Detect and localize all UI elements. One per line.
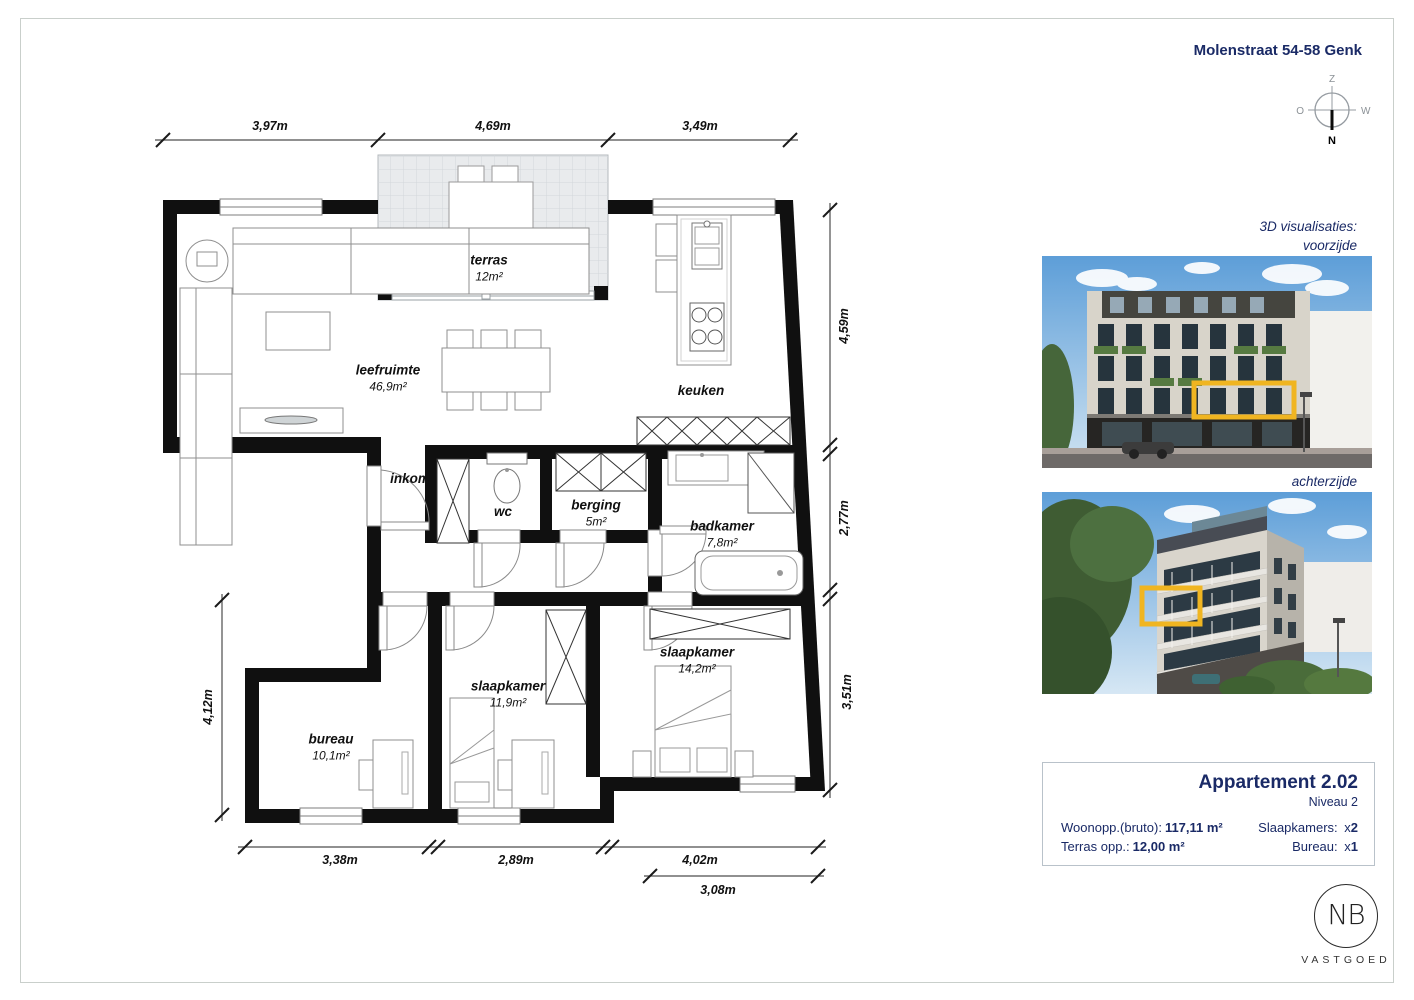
wardrobe-bedroom1 [546,610,586,704]
company-logo: NB VASTGOED [1296,880,1396,966]
window-bedroom1 [458,808,520,824]
area-stats: Woonopp.(bruto):117,11 m² Terras opp.:12… [1061,819,1223,857]
compass-south-label: Z [1329,74,1335,85]
dim-right-1: 4,59m [837,308,851,343]
dim-top-1: 3,97m [252,119,287,133]
room-label-inkom: inkom [390,470,430,488]
front-view-render [1042,256,1372,468]
dim-bottom-4: 3,08m [700,883,735,897]
back-view-render [1042,492,1372,694]
room-label-terras: terras 12m² [470,251,508,284]
living-area-field: Woonopp.(bruto):117,11 m² [1061,819,1223,838]
hall-closet-crossed [437,459,469,543]
room-label-slaapkamer-1: slaapkamer 11,9m² [471,677,545,710]
window-kitchen [653,199,775,215]
berging-door [556,530,606,587]
car [1192,674,1220,684]
white-side-building [1310,311,1372,451]
room-label-slaapkamer-2: slaapkamer 14,2m² [660,643,734,676]
main-building-front [1087,291,1310,448]
dim-right-3: 3,51m [840,674,854,709]
room-label-bureau: bureau 10,1m² [308,730,353,763]
front-view-label: voorzijde [1042,237,1357,256]
dim-top-2: 4,69m [475,119,510,133]
apartment-stats: Woonopp.(bruto):117,11 m² Terras opp.:12… [1061,819,1358,857]
room-label-badkamer: badkamer 7,8m² [690,517,754,550]
room-label-leefruimte: leefruimte 46,9m² [356,361,421,394]
room-label-berging: berging 5m² [571,496,621,529]
kitchen-counter-crossed [637,417,790,445]
visualisations-heading: 3D visualisaties: [1042,218,1357,237]
dim-right-2: 2,77m [837,500,851,535]
window-living [220,199,322,215]
bedroom1-door [446,592,494,650]
dim-bottom-2: 2,89m [498,853,533,867]
dim-bottom-1: 3,38m [322,853,357,867]
apartment-info-box: Appartement 2.02 Niveau 2 Woonopp.(bruto… [1042,762,1375,866]
room-label-wc: wc [494,503,512,521]
berging-storage-crossed [556,453,646,491]
terrace-area-field: Terras opp.:12,00 m² [1061,838,1223,857]
page-title: Molenstraat 54-58 Genk [1042,42,1362,59]
compass-north-label: N [1328,135,1336,147]
window-bedroom2 [740,776,795,792]
compass-west-label: W [1361,106,1371,117]
dim-bottom-3: 4,02m [682,853,717,867]
logo-monogram: NB [1314,884,1378,948]
back-view-photo [1042,492,1372,694]
wardrobe-bedroom2 [650,609,790,639]
bureau-count-field: Bureau: x1 [1258,838,1358,857]
bureau-door [379,592,427,650]
back-view-label: achterzijde [1042,473,1357,492]
apartment-title: Appartement 2.02 [1043,772,1358,794]
compass: Z W O N [1296,74,1371,147]
logo-company-name: VASTGOED [1296,954,1396,966]
window-bureau [300,808,362,824]
floorplan-sheet: Z W O N terras 12m² leefruimte 46,9m² ke… [0,0,1414,1000]
room-count-stats: Slaapkamers: x2 Bureau: x1 [1258,819,1358,857]
room-label-keuken: keuken [678,382,725,400]
dim-left-1: 4,12m [201,689,215,724]
dim-top-3: 3,49m [682,119,717,133]
wc-door [474,530,520,587]
kitchen-furniture [637,215,790,445]
apartment-level: Niveau 2 [1043,795,1358,809]
bedrooms-count-field: Slaapkamers: x2 [1258,819,1358,838]
front-view-photo [1042,256,1372,468]
compass-east-label: O [1296,106,1304,117]
